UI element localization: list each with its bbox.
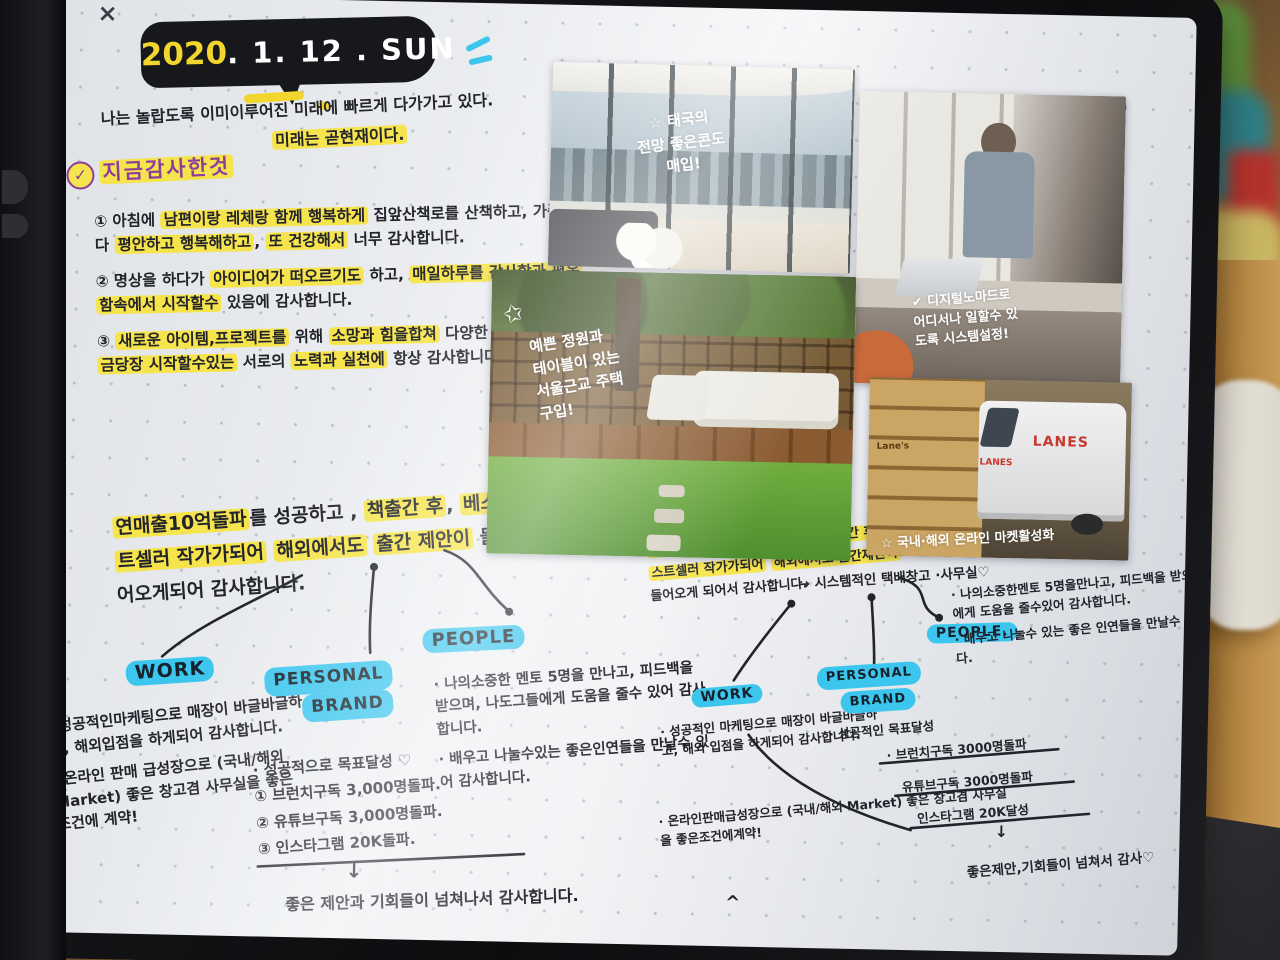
van-logo: LANES [1033,434,1089,451]
photo-outdoor-sofa [693,370,840,430]
photo-caption-condo: ☆ 태국의 전망 좋은콘도 매입! [634,104,729,181]
personal-brand-label: BRAND [301,688,393,722]
photo-path-stone [647,535,681,552]
photo-path-stone [654,509,684,524]
photo-digital-nomad[interactable]: ✔ 디지털노마드로 어디서나 일할수 있 도록 시스템설정! [854,91,1126,389]
case-notch [2,214,28,238]
van-logo-small: LANES [979,458,1012,469]
down-arrow-doodle: ↓ [994,822,1008,841]
node-people-left: PEOPLE [422,624,525,653]
photo-van-wheel [1071,513,1103,535]
photo-scene: × ↺ ↻ 2020. 1. 12 . SUN 나는 놀랍도록 이미이루어진 미… [0,0,1280,960]
personal-brand-label: PERSONAL [816,661,921,690]
photo-condo-view[interactable]: ☆ 태국의 전망 좋은콘도 매입! [548,62,855,274]
down-arrow-doodle: ↓ [345,858,362,882]
box-brand-label: Lane's [877,441,910,451]
node-personal-brand-left: PERSONAL BRAND [264,660,396,725]
photo-delivery-van[interactable]: Lane's LANES LANES ☆ 국내·해외 온라인 마켓활성화 [866,377,1132,560]
ipad-device: × ↺ ↻ 2020. 1. 12 . SUN 나는 놀랍도록 이미이루어진 미… [18,0,1223,960]
goal-number: ③ [257,835,271,862]
case-notch [2,170,28,204]
photo-caption-nomad: ✔ 디지털노마드로 어디서나 일할수 있 도록 시스템설정! [911,285,1020,352]
caret-doodle: ^ [725,892,741,913]
goal-text: 인스타그램 20K돌파. [275,830,416,857]
node-personal-brand-right: PERSONAL BRAND [816,658,923,716]
photo-caption-garden: 예쁜 정원과 테이블이 있는 서울근교 주택 구입! [528,323,629,425]
photo-white-flowers [614,223,688,270]
notes-app-canvas[interactable]: × ↺ ↻ 2020. 1. 12 . SUN 나는 놀랍도록 이미이루어진 미… [44,0,1196,956]
photo-garden-house[interactable]: ✩ 예쁜 정원과 테이블이 있는 서울근교 주택 구입! [486,269,856,561]
photo-person-body [963,152,1034,259]
photo-path-stone [659,485,685,498]
people-label: PEOPLE [422,624,525,653]
goal-number: ① [254,783,268,810]
goal-number: ② [255,809,269,836]
photo-lounge-chair [646,375,712,422]
tablet-case-edge [0,0,66,960]
